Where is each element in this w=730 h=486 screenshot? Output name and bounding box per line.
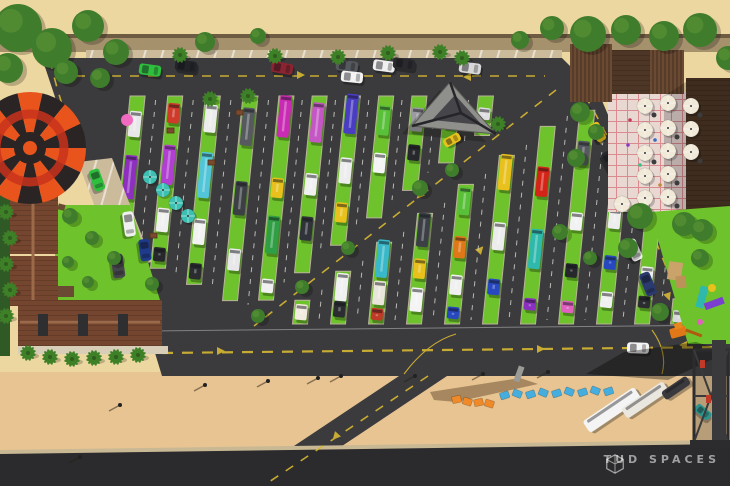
tree-highlight xyxy=(414,182,422,190)
car-windshield xyxy=(376,61,384,70)
tree-highlight xyxy=(56,62,68,74)
food-truck xyxy=(564,263,580,281)
tree-highlight xyxy=(197,34,207,44)
play-item xyxy=(697,319,703,325)
tower-mast xyxy=(712,340,726,444)
food-truck xyxy=(452,236,468,262)
palm-trunk xyxy=(92,356,96,360)
tree-highlight xyxy=(653,305,662,314)
food-truck xyxy=(334,202,350,226)
car-body xyxy=(340,70,363,83)
food-truck xyxy=(561,300,576,316)
person xyxy=(638,163,642,167)
palm-trunk xyxy=(496,122,500,126)
aerial-site-render: TUD SPACES xyxy=(0,0,730,486)
cube-logo-icon xyxy=(604,453,626,475)
food-truck xyxy=(227,248,243,274)
tree-highlight xyxy=(342,242,349,249)
tree-highlight xyxy=(569,151,578,160)
umbrella-pole xyxy=(667,196,669,198)
pergola xyxy=(56,286,74,297)
umbrella-pole xyxy=(667,150,669,152)
food-truck xyxy=(155,207,172,235)
truck-roof-stripe xyxy=(266,285,269,287)
palm-trunk xyxy=(4,314,8,318)
street-lamp xyxy=(339,374,343,378)
tree-highlight xyxy=(584,252,591,259)
truck-roof-stripe xyxy=(412,151,415,155)
palm-trunk xyxy=(8,236,12,240)
tree-highlight xyxy=(674,214,686,226)
tower-accent xyxy=(706,395,711,403)
truck-roof-stripe xyxy=(452,313,455,315)
car-windshield xyxy=(396,59,404,68)
food-truck xyxy=(407,144,423,164)
food-truck xyxy=(372,280,389,308)
tree-highlight xyxy=(146,278,153,285)
food-truck xyxy=(412,258,428,282)
palm-trunk xyxy=(26,351,30,355)
picnic-table xyxy=(150,233,157,238)
umbrella-pole xyxy=(149,176,151,178)
tree-highlight xyxy=(652,24,667,39)
umbrella-pole xyxy=(644,175,646,177)
balloon-vent xyxy=(23,141,37,155)
palm-trunk xyxy=(438,50,442,54)
food-truck xyxy=(599,291,615,311)
roof-vent xyxy=(38,314,48,336)
watermark: TUD SPACES xyxy=(604,453,720,466)
street-lamp xyxy=(316,376,320,380)
food-truck xyxy=(152,247,168,265)
patio-table xyxy=(675,204,680,209)
pink-tree xyxy=(121,114,133,126)
person xyxy=(658,183,662,187)
truck-roof-stripe xyxy=(483,114,486,116)
umbrella-pole xyxy=(621,203,623,205)
crate xyxy=(675,276,686,289)
patio-table xyxy=(652,160,657,165)
food-truck xyxy=(270,177,286,201)
truck-roof-stripe xyxy=(338,307,341,311)
street-lamp xyxy=(413,374,417,378)
street-lamp xyxy=(118,403,122,407)
car-windshield xyxy=(124,214,133,223)
umbrella-pole xyxy=(175,202,177,204)
picnic-table xyxy=(167,128,174,133)
construction-tower xyxy=(690,340,730,448)
tree-highlight xyxy=(693,221,704,232)
truck-roof-stripe xyxy=(643,302,646,304)
tree-highlight xyxy=(252,30,260,38)
tree-highlight xyxy=(693,251,702,260)
tree-highlight xyxy=(252,310,259,317)
tree-highlight xyxy=(630,206,643,219)
street-lamp xyxy=(78,455,82,459)
picnic-table xyxy=(236,110,243,115)
umbrella-pole xyxy=(690,105,692,107)
tree-highlight xyxy=(620,240,630,250)
food-truck xyxy=(523,298,538,314)
food-truck xyxy=(260,278,276,296)
palm-trunk xyxy=(70,357,74,361)
food-truck xyxy=(299,216,316,244)
tree-highlight xyxy=(83,277,89,283)
umbrella-pole xyxy=(187,215,189,217)
palm-trunk xyxy=(8,288,12,292)
tree-highlight xyxy=(106,42,119,55)
tree-highlight xyxy=(574,20,592,38)
play-dome xyxy=(708,284,716,292)
tree-highlight xyxy=(92,70,102,80)
palm-trunk xyxy=(273,54,277,58)
truck-roof-stripe xyxy=(570,269,573,271)
truck-roof-stripe xyxy=(492,285,495,289)
umbrella-pole xyxy=(667,173,669,175)
street-lamp xyxy=(266,379,270,383)
tree-highlight xyxy=(614,18,629,33)
food-truck xyxy=(409,287,426,315)
food-truck xyxy=(372,152,388,176)
car-windshield xyxy=(344,72,351,81)
umbrella-pole xyxy=(644,152,646,154)
tree-highlight xyxy=(686,16,703,33)
patio-table xyxy=(698,113,703,118)
palm-trunk xyxy=(4,210,8,214)
palm-trunk xyxy=(114,355,118,359)
palm-trunk xyxy=(386,51,390,55)
food-truck xyxy=(370,308,385,324)
umbrella-pole xyxy=(644,105,646,107)
umbrella-pole xyxy=(690,151,692,153)
person xyxy=(626,143,630,147)
umbrella-pole xyxy=(644,129,646,131)
roof-vent xyxy=(118,314,128,336)
patio-table xyxy=(652,113,657,118)
palm-trunk xyxy=(246,94,250,98)
truck-roof-stripe xyxy=(300,310,303,314)
truck-roof-stripe xyxy=(158,253,161,255)
truck-roof-stripe xyxy=(376,314,379,316)
street-lamp xyxy=(546,370,550,374)
tree-highlight xyxy=(108,252,115,259)
roof-vent xyxy=(78,314,88,336)
truck-roof-stripe xyxy=(677,316,680,318)
tree-highlight xyxy=(64,210,72,218)
tree-highlight xyxy=(36,32,56,52)
palm-trunk xyxy=(136,353,140,357)
food-truck xyxy=(294,304,310,324)
tower-base xyxy=(690,440,730,448)
food-truck xyxy=(446,306,461,322)
food-truck xyxy=(569,212,585,234)
umbrella-pole xyxy=(667,102,669,104)
car-windshield xyxy=(142,65,150,74)
patio-table xyxy=(675,181,680,186)
truck-roof-stripe xyxy=(529,304,532,306)
umbrella-pole xyxy=(644,197,646,199)
palm-trunk xyxy=(208,97,212,101)
car-windshield xyxy=(273,63,281,72)
food-truck xyxy=(449,274,465,298)
umbrella-pole xyxy=(690,128,692,130)
patio-table xyxy=(698,159,703,164)
tree-highlight xyxy=(513,33,522,42)
food-truck xyxy=(603,255,619,273)
person xyxy=(628,118,632,122)
beach-letter xyxy=(473,398,483,407)
food-truck xyxy=(338,157,355,187)
tree-highlight xyxy=(63,257,69,263)
umbrella-pole xyxy=(667,127,669,129)
tower-accent xyxy=(700,360,705,368)
food-truck xyxy=(303,173,319,199)
tree-highlight xyxy=(542,18,554,30)
car xyxy=(340,70,365,86)
tree-highlight xyxy=(554,226,562,234)
beach-letter xyxy=(451,395,461,404)
tree-highlight xyxy=(446,164,453,171)
tree-highlight xyxy=(590,126,598,134)
tree-highlight xyxy=(86,232,93,239)
tree-highlight xyxy=(75,13,91,29)
palm-trunk xyxy=(4,262,8,266)
food-truck xyxy=(188,263,204,283)
truck-roof-stripe xyxy=(566,307,569,309)
person xyxy=(653,138,657,142)
picnic-table xyxy=(208,160,215,165)
palm-trunk xyxy=(336,55,340,59)
umbrella-pole xyxy=(162,189,164,191)
food-truck xyxy=(166,103,182,127)
tree-highlight xyxy=(718,48,730,60)
tree-highlight xyxy=(296,281,303,288)
food-truck xyxy=(332,301,348,321)
roof-tiles xyxy=(612,50,650,94)
street-lamp xyxy=(203,383,207,387)
truck-roof-stripe xyxy=(605,298,608,302)
tree-highlight xyxy=(572,104,582,114)
site-plan-canvas xyxy=(0,0,730,486)
patio-table xyxy=(675,135,680,140)
truck-roof-stripe xyxy=(609,261,612,263)
palm-trunk xyxy=(460,56,464,60)
palm-trunk xyxy=(48,355,52,359)
palm-trunk xyxy=(178,53,182,57)
street-lamp xyxy=(481,372,485,376)
car-windshield xyxy=(140,242,149,250)
food-truck xyxy=(487,278,503,298)
truck-roof-stripe xyxy=(194,269,197,273)
